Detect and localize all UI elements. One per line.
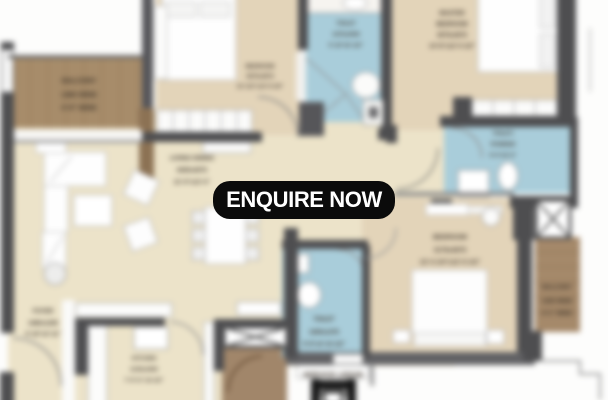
svg-text:BEDROOM: BEDROOM xyxy=(433,234,467,241)
svg-text:4'-10"x3'-11": 4'-10"x3'-11" xyxy=(25,332,61,338)
svg-text:7'-0"x7'-10 1/2": 7'-0"x7'-10 1/2" xyxy=(124,378,163,384)
svg-text:SERVICE LEDGE: SERVICE LEDGE xyxy=(303,370,364,379)
svg-text:FOYER: FOYER xyxy=(33,309,54,315)
svg-text:4575x3675: 4575x3675 xyxy=(437,33,468,39)
svg-text:BEDROOM: BEDROOM xyxy=(436,22,467,28)
svg-text:2135x2400: 2135x2400 xyxy=(130,367,158,373)
svg-text:4'-9" WIDE: 4'-9" WIDE xyxy=(61,105,97,112)
svg-text:TOILET: TOILET xyxy=(313,317,335,323)
svg-text:TOILET/: TOILET/ xyxy=(493,131,514,137)
svg-text:6400x4075: 6400x4075 xyxy=(177,168,208,174)
svg-text:POWDER: POWDER xyxy=(491,142,516,148)
svg-text:BEDROOM: BEDROOM xyxy=(246,64,275,70)
svg-text:4'-1" WIDE: 4'-1" WIDE xyxy=(542,311,572,317)
svg-text:3175x3675: 3175x3675 xyxy=(434,247,467,254)
svg-text:1400x1475: 1400x1475 xyxy=(309,330,340,336)
svg-text:TOILET: TOILET xyxy=(336,21,356,27)
svg-text:MASTER: MASTER xyxy=(439,11,465,17)
svg-text:1250 WIDE: 1250 WIDE xyxy=(542,299,573,305)
svg-text:5'-6"x4'-10 1/2": 5'-6"x4'-10 1/2" xyxy=(303,342,346,348)
svg-text:3675x3675: 3675x3675 xyxy=(246,74,274,80)
svg-text:5'-10"x6'-1/2": 5'-10"x6'-1/2" xyxy=(329,43,364,49)
svg-text:21'-0"x13'-4": 21'-0"x13'-4" xyxy=(174,180,210,186)
svg-text:LIVING/ DINING: LIVING/ DINING xyxy=(170,156,215,162)
svg-text:14'-8"x12'-0 1/2": 14'-8"x12'-0 1/2" xyxy=(429,44,475,50)
svg-text:KITCHEN: KITCHEN xyxy=(132,356,156,362)
svg-text:BALCONY: BALCONY xyxy=(62,78,97,85)
svg-text:BALCONY: BALCONY xyxy=(542,285,572,291)
svg-text:1480x1200: 1480x1200 xyxy=(28,321,59,327)
svg-text:1475x2000: 1475x2000 xyxy=(332,32,360,38)
svg-text:9'-4"x5'-0": 9'-4"x5'-0" xyxy=(490,153,517,159)
svg-text:12'-4 1/4"x12'-0 1/2": 12'-4 1/4"x12'-0 1/2" xyxy=(420,259,481,266)
svg-text:12'-1/2"x13'-9 1/4": 12'-1/2"x13'-9 1/4" xyxy=(237,84,284,90)
svg-text:1460 WIDE: 1460 WIDE xyxy=(61,92,97,99)
